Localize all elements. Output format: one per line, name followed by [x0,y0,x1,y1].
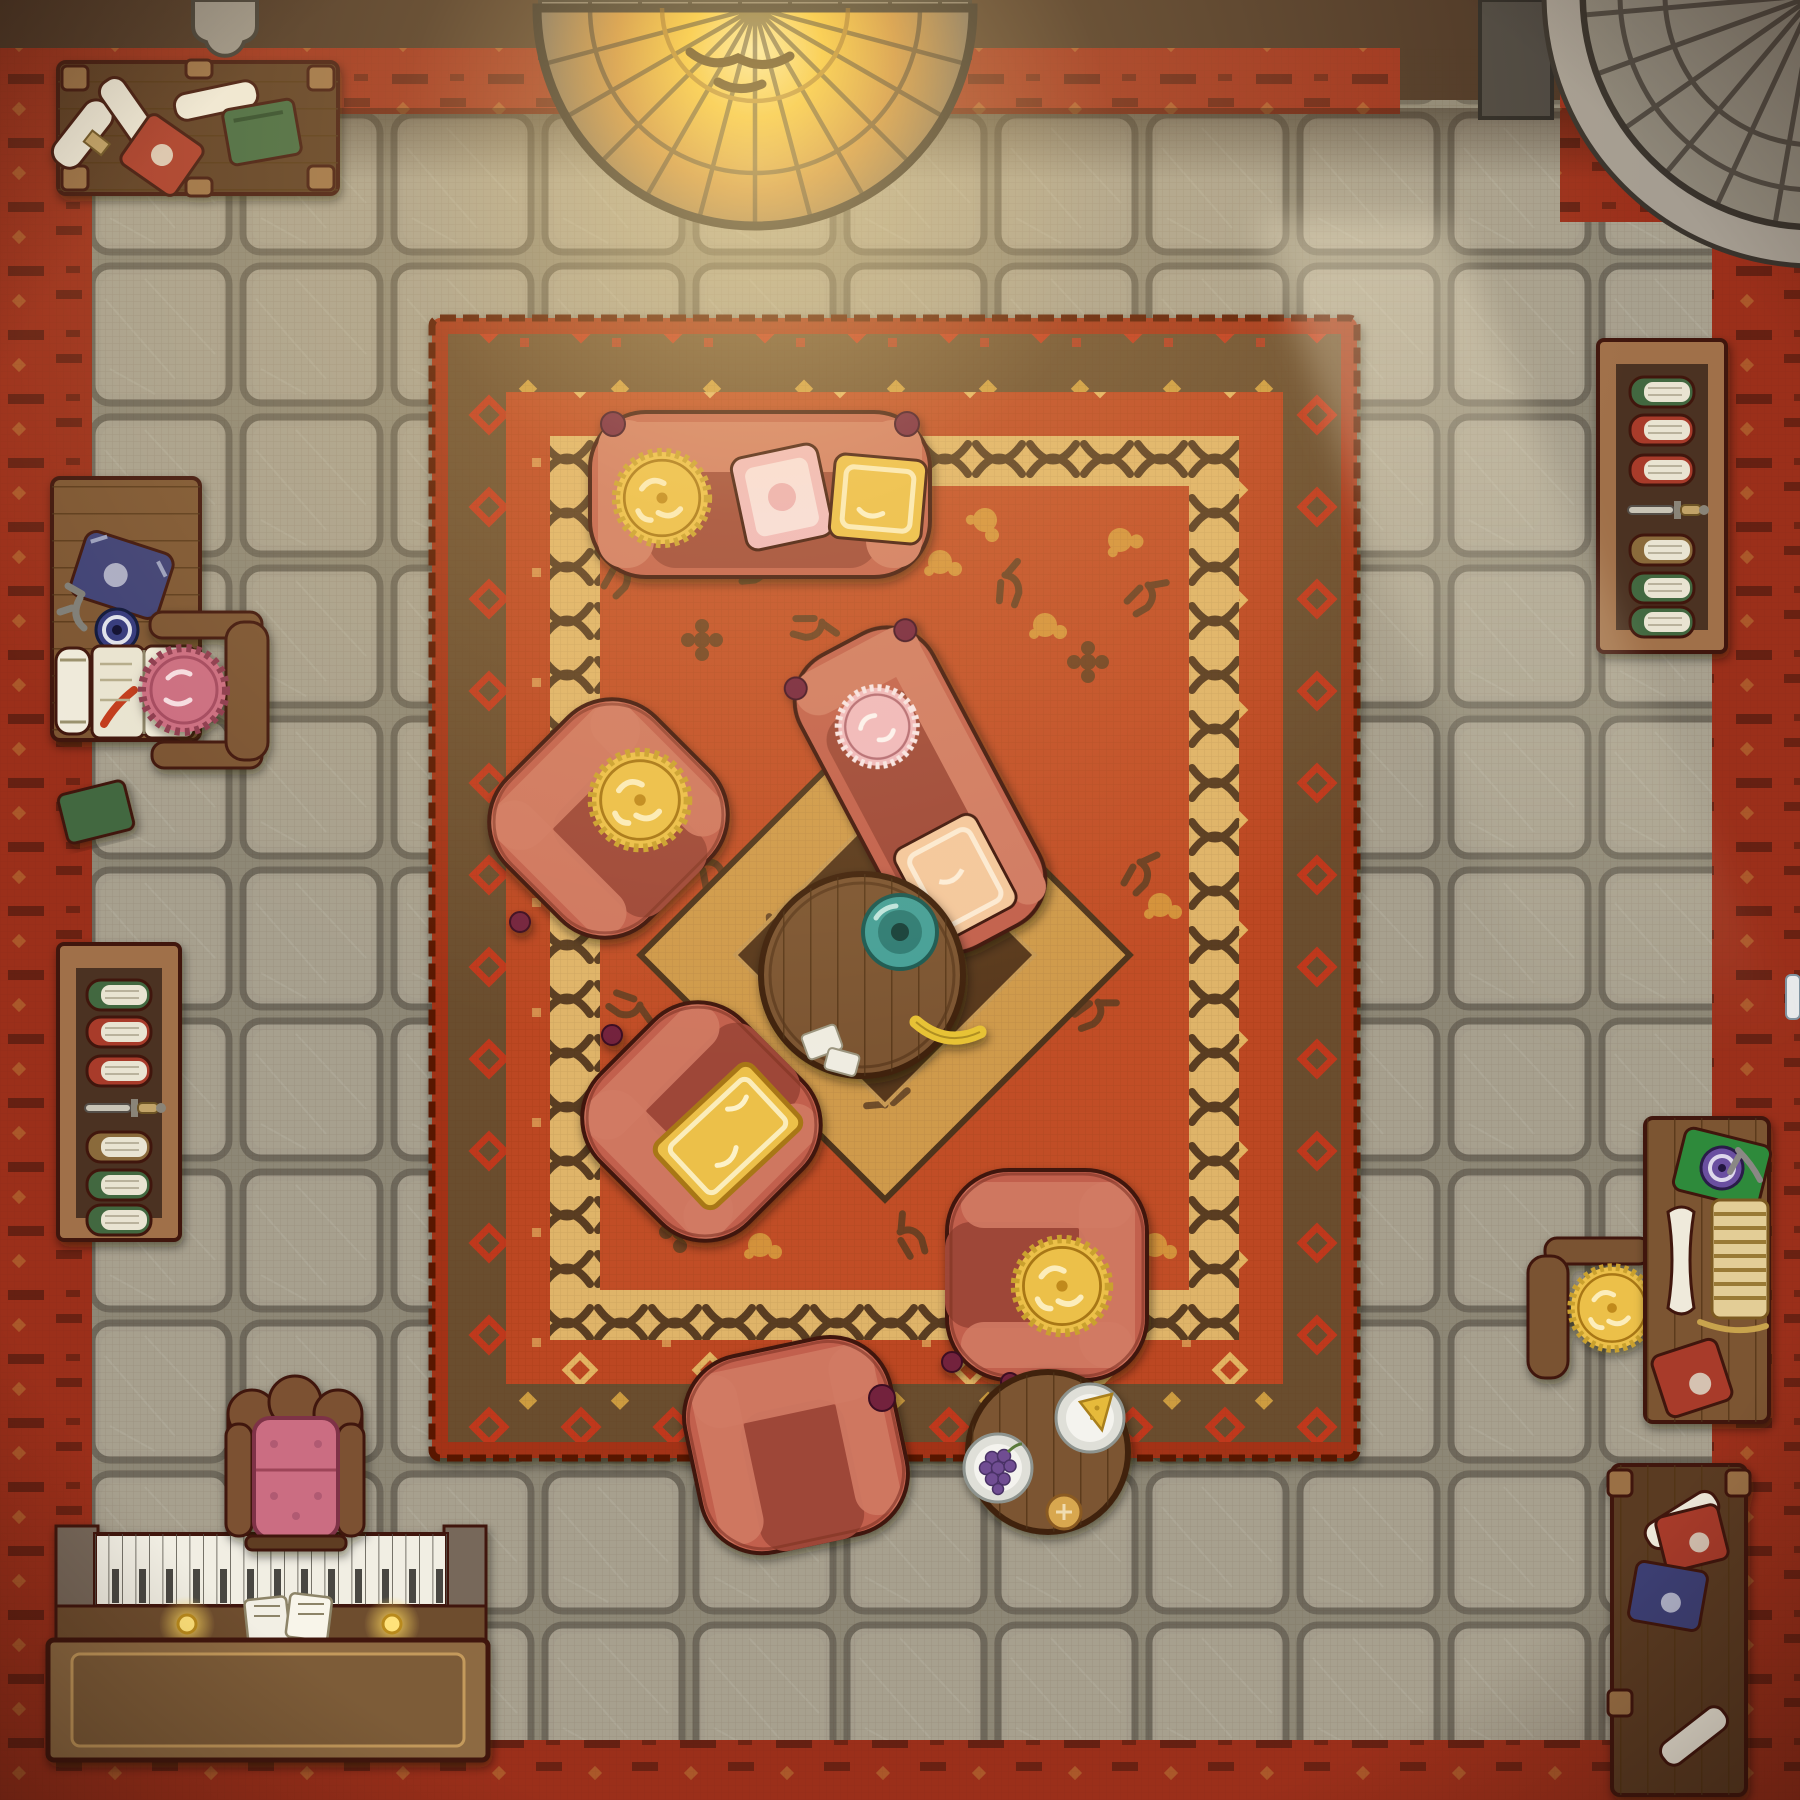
battlemap [0,0,1800,1800]
vignette [0,0,1800,1800]
battlemap-canvas [0,0,1800,1800]
